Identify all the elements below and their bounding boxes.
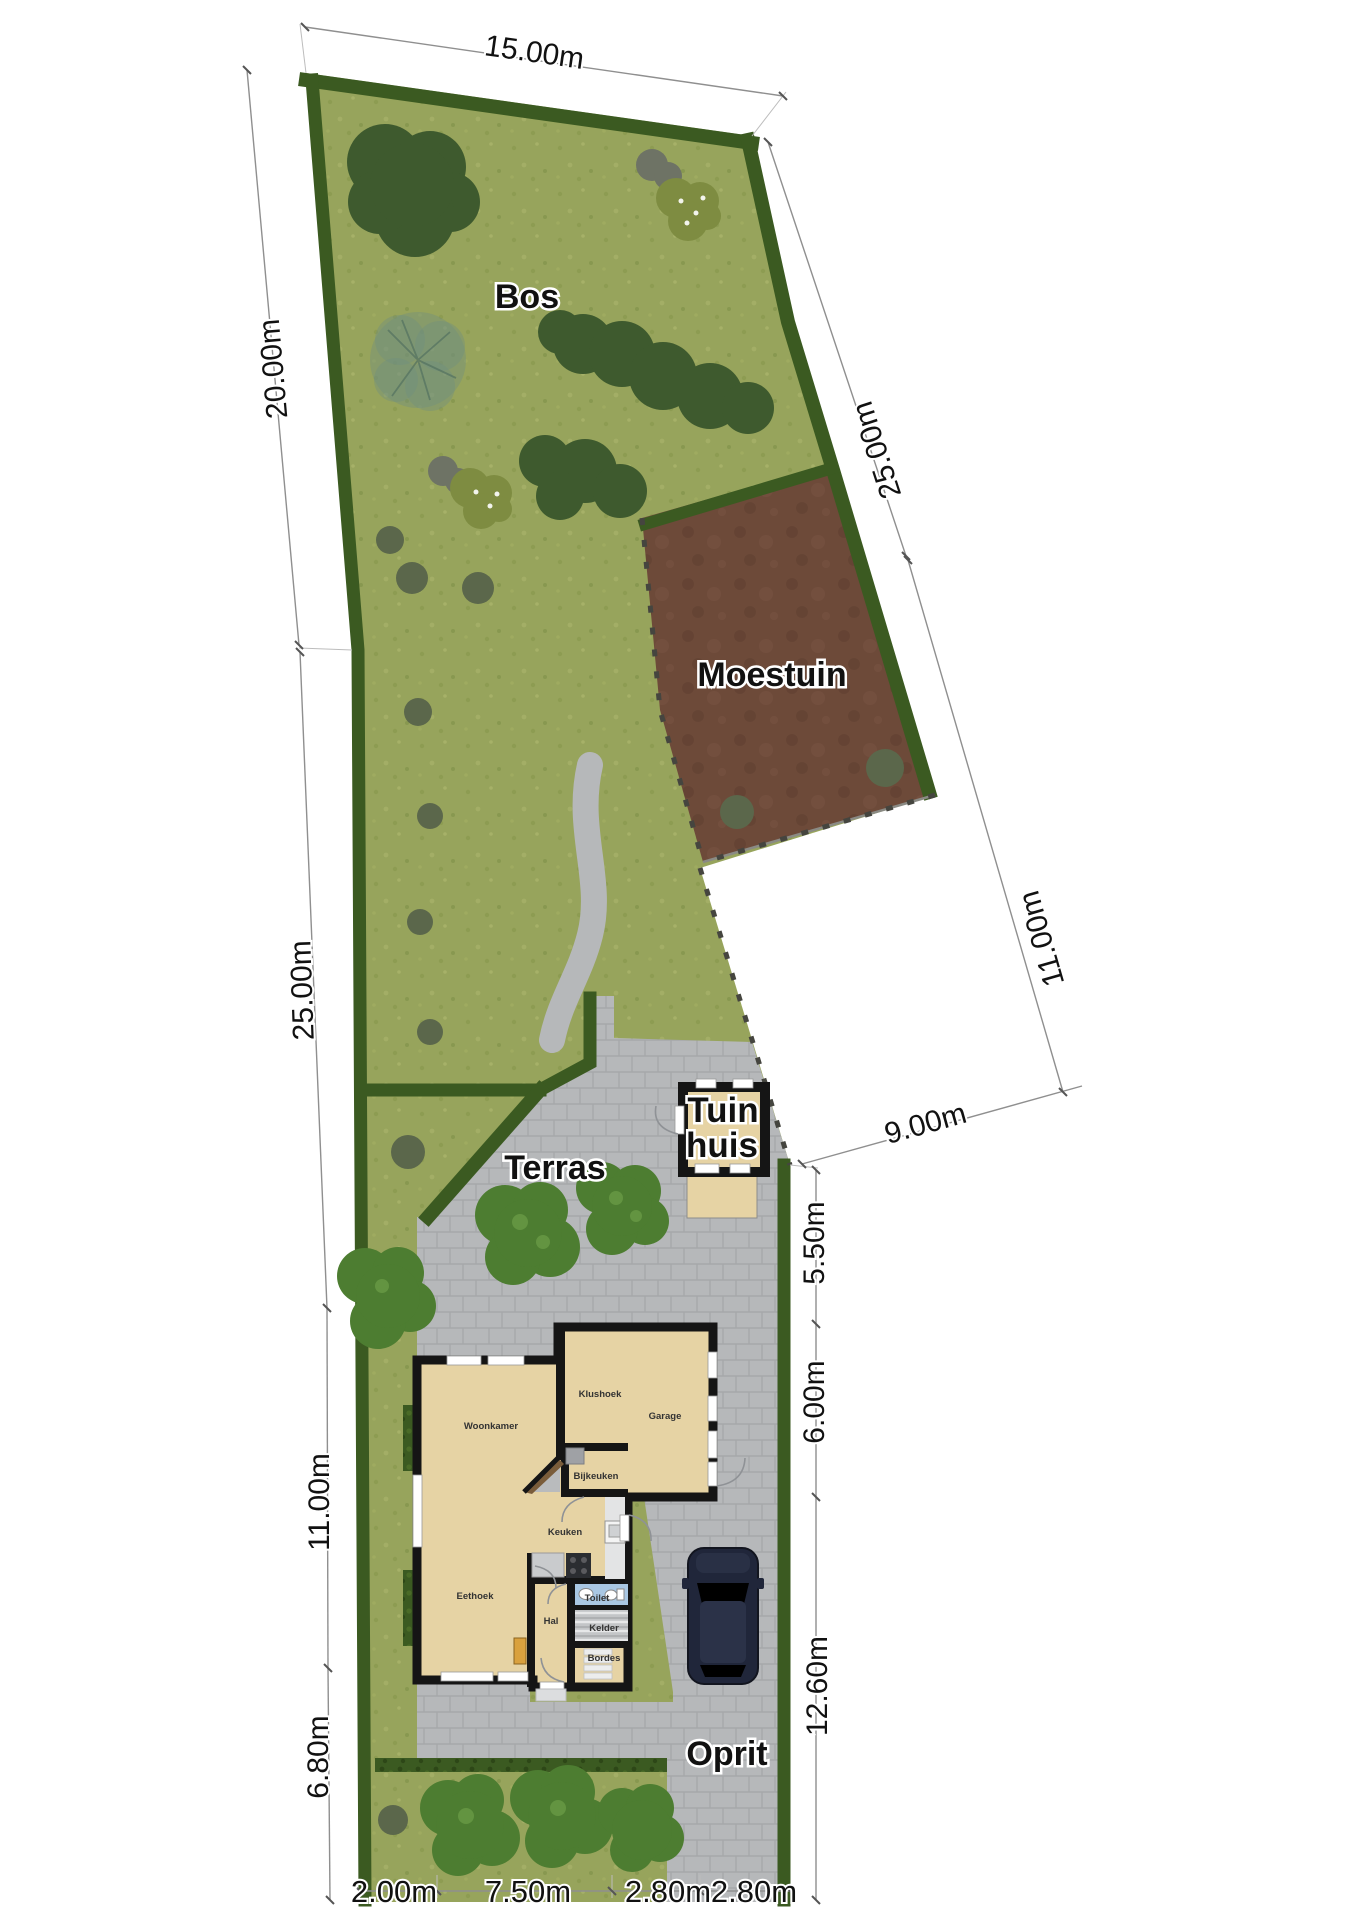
room-keuken: Keuken bbox=[548, 1527, 583, 1538]
dim-bottom-1: 2.00m bbox=[351, 1874, 437, 1909]
room-hal: Hal bbox=[544, 1616, 559, 1627]
dim-bottom-3: 2.80m bbox=[625, 1874, 711, 1909]
car-windshield bbox=[697, 1583, 749, 1604]
window bbox=[498, 1672, 528, 1681]
car-mirror bbox=[757, 1578, 764, 1589]
front-stoop bbox=[536, 1689, 566, 1701]
car-mirror bbox=[682, 1578, 689, 1589]
hal-cabinet bbox=[514, 1638, 526, 1664]
room-toilet: Toilet bbox=[585, 1593, 610, 1604]
dim-600: 6.00m bbox=[798, 1360, 831, 1443]
bordes-step bbox=[584, 1673, 612, 1679]
kitchen-sink-basin bbox=[609, 1525, 621, 1537]
tuinhuis-window bbox=[695, 1164, 719, 1173]
label-bos: Bos bbox=[495, 278, 559, 316]
car-rear-window bbox=[700, 1665, 746, 1677]
hedge-bottom-garden bbox=[375, 1758, 667, 1772]
dim-right-mid: 11.00m bbox=[1013, 887, 1072, 990]
dim-bend: 9.00m bbox=[881, 1097, 970, 1151]
wall-klushoek bbox=[556, 1327, 565, 1460]
room-kelder: Kelder bbox=[589, 1623, 619, 1634]
site-plan-canvas: 15.00m 20.00m 25.00m 11.00m 6.80m 25.00m… bbox=[0, 0, 1358, 1920]
window bbox=[708, 1431, 717, 1458]
site-plan: 15.00m 20.00m 25.00m 11.00m 6.80m 25.00m… bbox=[0, 0, 1358, 1920]
room-bijkeuken: Bijkeuken bbox=[574, 1471, 619, 1482]
room-klushoek: Klushoek bbox=[579, 1389, 622, 1400]
bordes-step bbox=[584, 1665, 612, 1671]
tree bbox=[475, 1182, 580, 1285]
label-oprit: Oprit bbox=[686, 1735, 767, 1773]
label-tuinhuis-2: huis bbox=[686, 1126, 758, 1165]
tree bbox=[370, 312, 466, 411]
room-woonkamer: Woonkamer bbox=[464, 1421, 519, 1432]
room-bordes: Bordes bbox=[588, 1653, 621, 1664]
window bbox=[708, 1396, 717, 1421]
toilet-tank bbox=[617, 1589, 624, 1600]
dim-bottom-4: 2.80m bbox=[711, 1874, 797, 1909]
room-garage: Garage bbox=[649, 1411, 682, 1422]
dim-550: 5.50m bbox=[798, 1201, 831, 1284]
window bbox=[447, 1356, 481, 1365]
car bbox=[682, 1548, 764, 1684]
label-moestuin: Moestuin bbox=[697, 656, 846, 694]
wall-kelder-bottom bbox=[571, 1641, 628, 1648]
label-terras: Terras bbox=[504, 1149, 605, 1187]
dim-top: 15.00m bbox=[482, 29, 586, 76]
tuinhuis-patio bbox=[687, 1170, 757, 1218]
window bbox=[441, 1672, 493, 1681]
tuinhuis-window bbox=[696, 1079, 716, 1088]
dim-right-upper: 25.00m bbox=[846, 397, 908, 502]
window bbox=[708, 1352, 717, 1378]
car-roof bbox=[700, 1601, 746, 1663]
wall-bijkeuken-bottom bbox=[561, 1489, 628, 1497]
bijkeuken-appliance bbox=[566, 1448, 584, 1464]
tuinhuis-window bbox=[733, 1079, 753, 1088]
window bbox=[413, 1475, 422, 1547]
dim-line-right-mid bbox=[908, 560, 1063, 1092]
kitchen-stove bbox=[566, 1553, 591, 1578]
label-tuinhuis-1: Tuin bbox=[687, 1091, 758, 1130]
car-hood bbox=[696, 1553, 750, 1573]
dim-left-lower: 11.00m bbox=[303, 1453, 336, 1551]
tuinhuis-window bbox=[730, 1164, 750, 1173]
garage-side-door bbox=[708, 1462, 717, 1486]
dim-left-mid: 25.00m bbox=[284, 940, 320, 1041]
dim-left-bottom: 6.80m bbox=[302, 1715, 335, 1798]
wall-hal-right bbox=[567, 1584, 575, 1687]
tuinhuis-door bbox=[675, 1106, 684, 1134]
kitchen-counter bbox=[532, 1553, 564, 1577]
dim-left-upper: 20.00m bbox=[253, 318, 295, 421]
keuken-door bbox=[620, 1515, 629, 1541]
room-eethoek: Eethoek bbox=[457, 1591, 495, 1602]
window bbox=[488, 1356, 524, 1365]
dim-bottom-2: 7.50m bbox=[485, 1874, 571, 1909]
dim-1260: 12.60m bbox=[801, 1636, 834, 1736]
